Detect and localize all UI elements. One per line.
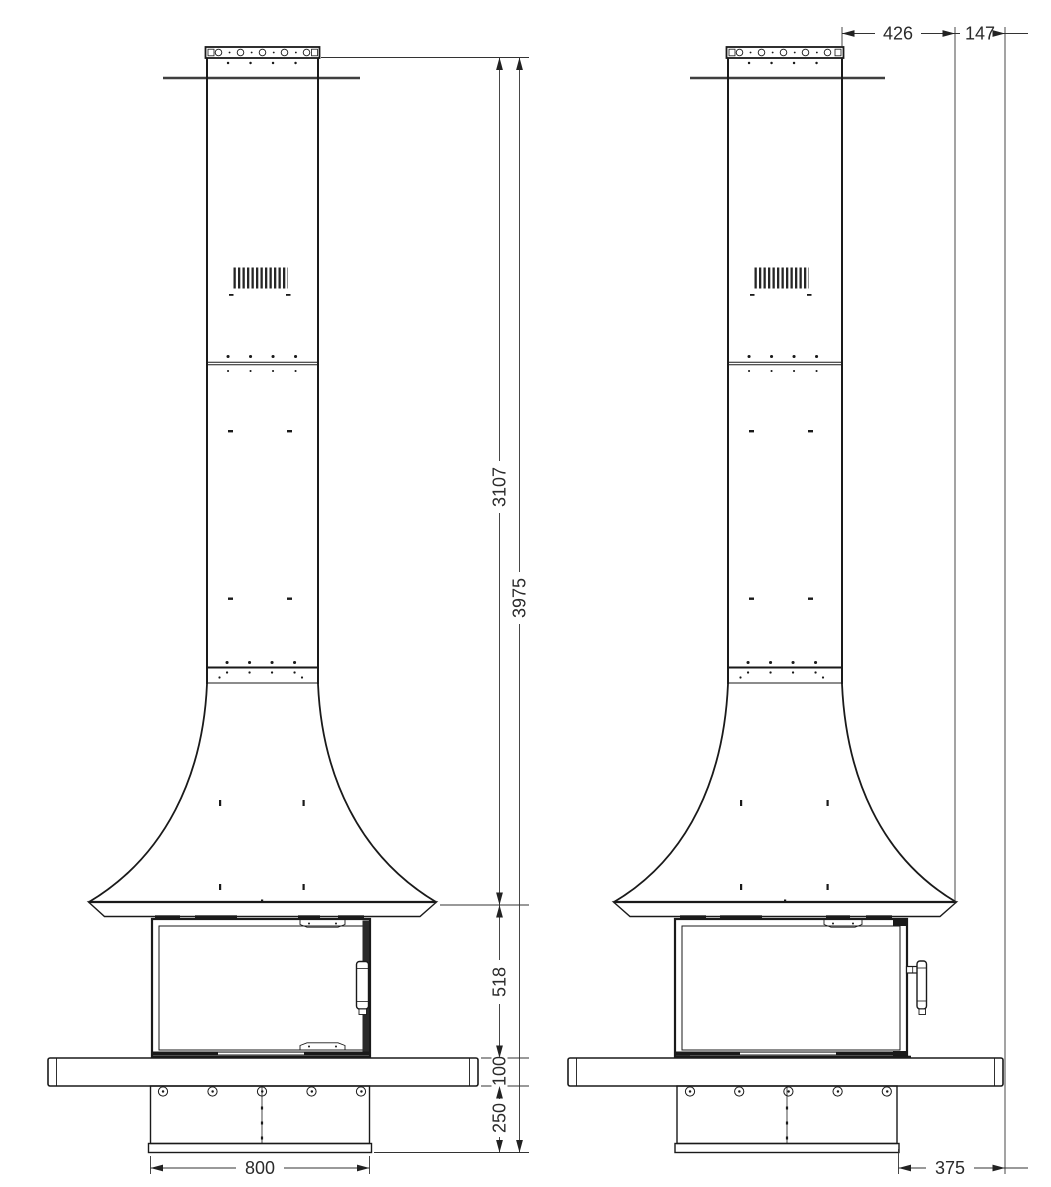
base-depth-dim-label: 375 (935, 1158, 965, 1178)
chimney-height-dim-label: 3107 (490, 467, 510, 507)
side-firebox (674, 915, 927, 1058)
side-bench (568, 1058, 1003, 1086)
bench-thickness-dim-label: 100 (490, 1056, 510, 1086)
front-chimney (206, 47, 320, 684)
front-door-frame (152, 919, 370, 1057)
front-plinth (149, 1086, 372, 1153)
front-door-handle (357, 962, 369, 1015)
front-lower-collar (207, 663, 318, 684)
firebox-height-dim-label: 518 (490, 967, 510, 997)
technical-drawing: 3107 3975 518 100 250 800 426 147 375 (0, 0, 1051, 1187)
side-lower-collar (728, 663, 842, 684)
front-firebox (151, 915, 371, 1057)
front-view (48, 47, 478, 1153)
side-door-glass (682, 926, 900, 1050)
side-plinth (675, 1086, 899, 1153)
side-flue-joint (728, 357, 842, 372)
front-top-collar-bolts (215, 49, 310, 63)
side-view (568, 47, 1003, 1153)
side-hood (614, 684, 957, 917)
side-door-frame (675, 919, 907, 1057)
front-vent-grille-icon (229, 278, 291, 296)
hood-to-wall-dim-label: 147 (965, 24, 995, 44)
side-top-collar-bolts (736, 49, 831, 63)
hood-overhang-dim-label: 426 (883, 24, 913, 44)
overall-height-dim-label: 3975 (510, 578, 530, 618)
side-door-handle (907, 961, 927, 1015)
front-bench (48, 1058, 478, 1086)
base-width-dim-label: 800 (245, 1158, 275, 1178)
side-dimensions: 426 147 375 (842, 24, 1028, 1179)
plinth-height-dim-label: 250 (490, 1103, 510, 1133)
side-chimney (727, 47, 844, 684)
front-hood (89, 684, 437, 917)
front-flue-joint (207, 357, 318, 372)
side-vent-grille-icon (750, 278, 812, 296)
front-door-glass (159, 926, 363, 1050)
